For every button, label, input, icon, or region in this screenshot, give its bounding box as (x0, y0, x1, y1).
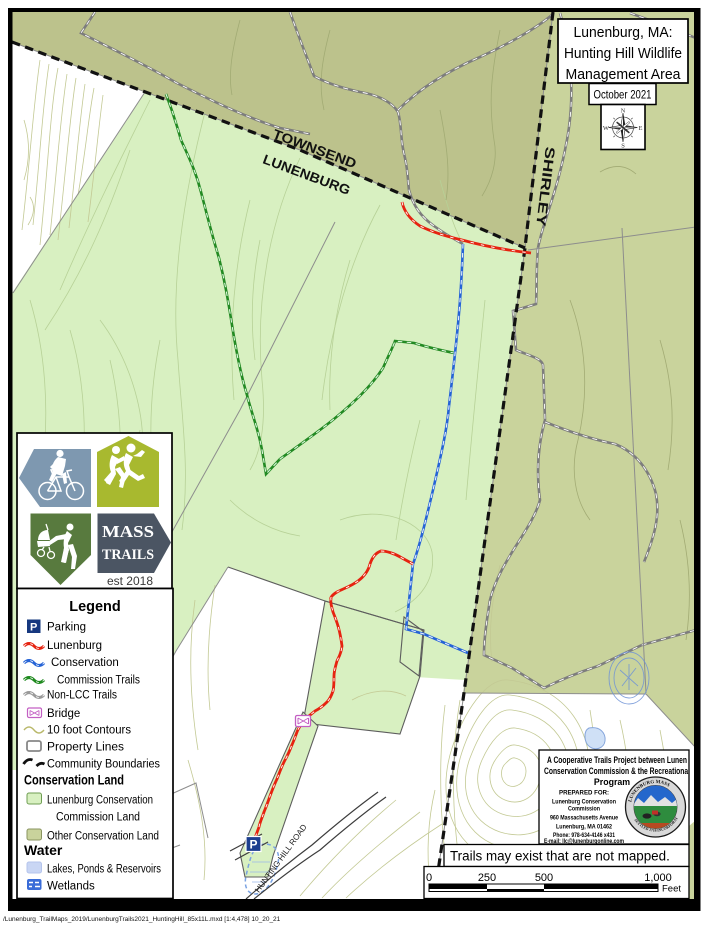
svg-text:1,000: 1,000 (644, 872, 672, 884)
svg-text:MASS: MASS (102, 522, 154, 541)
svg-text:Non-LCC Trails: Non-LCC Trails (47, 690, 117, 702)
svg-text:Lunenburg, MA 01462: Lunenburg, MA 01462 (556, 824, 612, 831)
svg-text:Other Conservation Land: Other Conservation Land (47, 831, 159, 843)
svg-text:Trails may exist that are not: Trails may exist that are not mapped. (450, 849, 670, 864)
svg-text:Commission Trails: Commission Trails (57, 675, 140, 687)
svg-text:A Cooperative Trails Project b: A Cooperative Trails Project between Lun… (547, 755, 687, 765)
svg-text:Wetlands: Wetlands (47, 881, 95, 893)
svg-text:Parking: Parking (47, 622, 86, 634)
svg-text:Conservation Commission & the: Conservation Commission & the Recreation… (544, 766, 690, 776)
svg-text:Conservation: Conservation (51, 657, 119, 669)
svg-text:October 2021: October 2021 (594, 88, 652, 102)
svg-text:Legend: Legend (69, 599, 121, 615)
svg-text:S: S (621, 143, 625, 150)
svg-text:250: 250 (478, 872, 496, 884)
svg-text:500: 500 (535, 872, 553, 884)
svg-text:W: W (603, 125, 610, 132)
svg-text:Commission Land: Commission Land (56, 812, 140, 824)
svg-text:P: P (249, 838, 257, 852)
svg-text:Lunenburg Conservation: Lunenburg Conservation (47, 795, 153, 807)
svg-text:Property Lines: Property Lines (47, 742, 124, 754)
svg-text:est 2018: est 2018 (107, 574, 153, 588)
svg-text:Lakes, Ponds & Reservoirs: Lakes, Ponds & Reservoirs (47, 864, 161, 876)
svg-text:Conservation Land: Conservation Land (24, 772, 124, 788)
svg-text:Community Boundaries: Community Boundaries (47, 759, 160, 771)
svg-text:Bridge: Bridge (47, 708, 80, 720)
svg-text:Lunenburg: Lunenburg (47, 640, 102, 652)
svg-text:TRAILS: TRAILS (102, 547, 154, 563)
svg-text:Lunenburg, MA:: Lunenburg, MA: (574, 24, 673, 41)
svg-text:PREPARED FOR:: PREPARED FOR: (559, 790, 609, 797)
svg-text:E: E (639, 125, 643, 132)
svg-text:960 Massachusetts Avenue: 960 Massachusetts Avenue (550, 815, 618, 822)
svg-text:/Lunenburg_TrailMaps_2019/Lune: /Lunenburg_TrailMaps_2019/LunenburgTrail… (3, 916, 281, 923)
svg-text:10 foot Contours: 10 foot Contours (47, 725, 131, 737)
svg-text:P: P (30, 622, 37, 634)
svg-text:N: N (621, 108, 626, 115)
svg-text:Lunenburg Conservation: Lunenburg Conservation (552, 799, 616, 806)
svg-text:Program: Program (594, 777, 630, 787)
svg-text:Management Area: Management Area (566, 66, 682, 83)
svg-text:Phone: 978-634-4146 x431: Phone: 978-634-4146 x431 (553, 832, 615, 839)
svg-text:Hunting Hill Wildlife: Hunting Hill Wildlife (564, 45, 682, 62)
svg-text:Commission: Commission (568, 806, 600, 813)
svg-text:Water: Water (24, 842, 63, 858)
svg-text:0: 0 (426, 872, 432, 884)
svg-text:Feet: Feet (662, 884, 681, 895)
